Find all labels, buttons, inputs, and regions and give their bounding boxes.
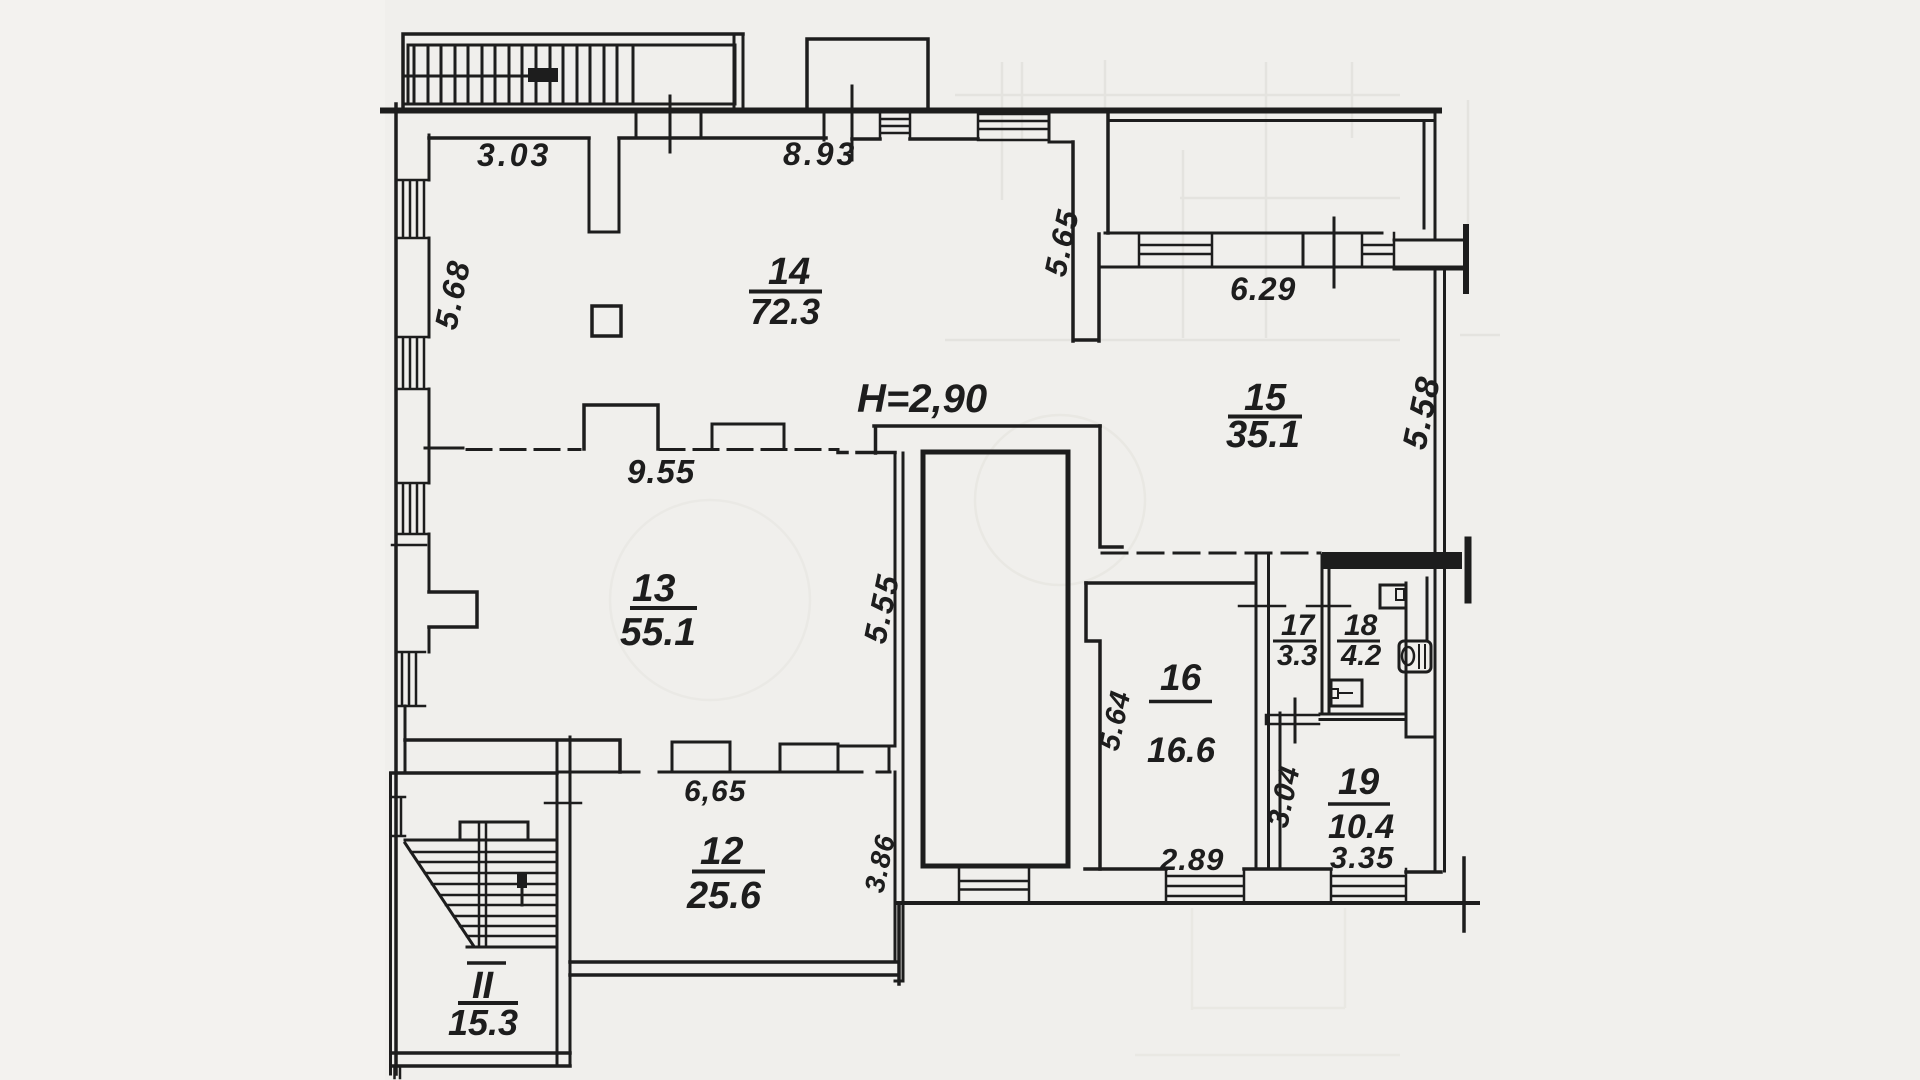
svg-text:15.3: 15.3 — [448, 1002, 518, 1043]
svg-text:8.93: 8.93 — [783, 136, 857, 172]
svg-text:4.2: 4.2 — [1340, 640, 1381, 672]
svg-text:6.29: 6.29 — [1230, 271, 1296, 307]
svg-text:16.6: 16.6 — [1147, 731, 1216, 770]
svg-text:H=2,90: H=2,90 — [857, 377, 987, 421]
svg-text:17: 17 — [1281, 609, 1316, 642]
svg-text:3.3: 3.3 — [1277, 640, 1317, 672]
svg-text:II: II — [472, 965, 495, 1007]
svg-text:25.6: 25.6 — [686, 875, 762, 917]
svg-text:3.03: 3.03 — [477, 137, 551, 173]
svg-text:9.55: 9.55 — [627, 453, 695, 490]
svg-text:13: 13 — [632, 567, 676, 610]
svg-text:15: 15 — [1244, 377, 1287, 419]
svg-text:12: 12 — [700, 830, 744, 873]
svg-text:2.89: 2.89 — [1159, 842, 1224, 877]
svg-text:55.1: 55.1 — [620, 611, 696, 654]
svg-text:16: 16 — [1160, 657, 1202, 698]
svg-text:14: 14 — [768, 251, 810, 293]
svg-text:3.35: 3.35 — [1330, 840, 1394, 875]
svg-text:6,65: 6,65 — [684, 775, 747, 808]
svg-text:18: 18 — [1344, 609, 1378, 642]
svg-text:72.3: 72.3 — [750, 291, 820, 332]
svg-text:19: 19 — [1338, 761, 1380, 802]
svg-text:35.1: 35.1 — [1226, 414, 1300, 456]
